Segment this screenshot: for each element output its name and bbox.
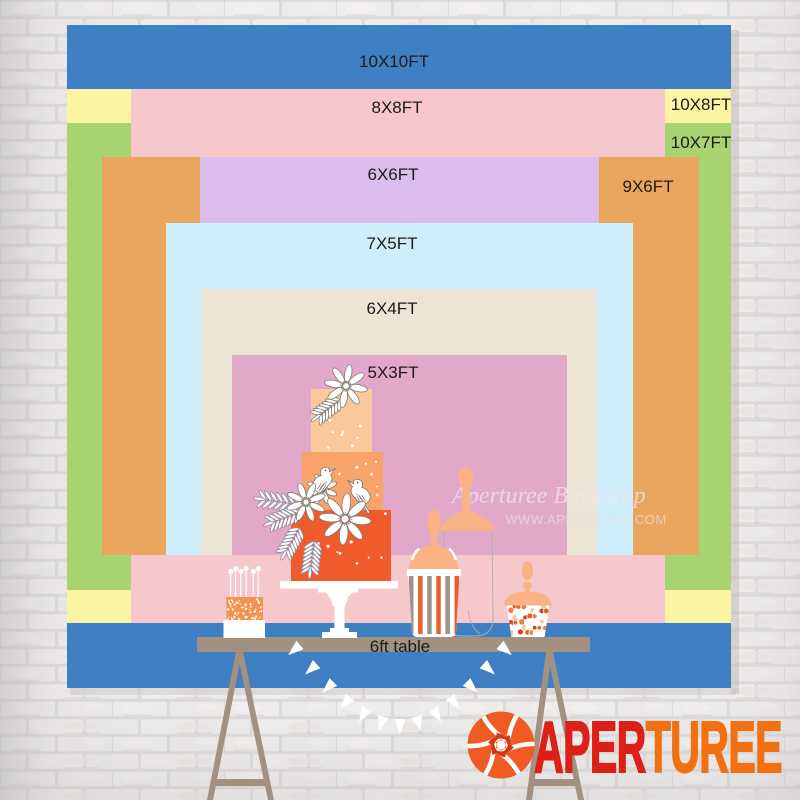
svg-text:6X4FT: 6X4FT bbox=[366, 299, 417, 318]
svg-text:9X6FT: 9X6FT bbox=[622, 177, 673, 196]
svg-text:APERTUREE: APERTUREE bbox=[534, 708, 782, 788]
svg-text:7X5FT: 7X5FT bbox=[366, 234, 417, 253]
svg-text:6X6FT: 6X6FT bbox=[367, 165, 418, 184]
svg-text:WWW.APERTUREE.COM: WWW.APERTUREE.COM bbox=[505, 512, 666, 527]
svg-text:10X8FT: 10X8FT bbox=[671, 95, 731, 114]
svg-text:8X8FT: 8X8FT bbox=[371, 98, 422, 117]
svg-text:5X3FT: 5X3FT bbox=[367, 363, 418, 382]
svg-text:10X7FT: 10X7FT bbox=[671, 133, 731, 152]
svg-text:Aperturee Backdrop: Aperturee Backdrop bbox=[450, 483, 646, 509]
svg-text:6ft table: 6ft table bbox=[370, 637, 431, 656]
svg-text:10X10FT: 10X10FT bbox=[359, 52, 429, 71]
